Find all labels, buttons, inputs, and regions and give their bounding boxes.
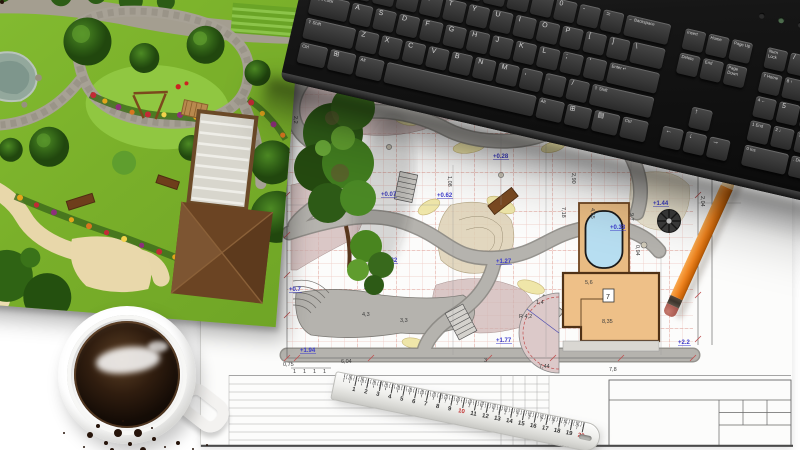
ruler-cm-tick [438, 393, 441, 403]
key-l: L [536, 46, 561, 71]
elevation-label: +1.27 [496, 259, 512, 265]
key-z: Z [355, 30, 380, 55]
key-7: 7 [483, 0, 508, 7]
key-g: G [442, 24, 467, 49]
key-del: . Del [787, 155, 800, 180]
key-e: E [395, 0, 420, 13]
keyboard: `1234567890-=← BackspaceTabQWERTYUIOP[]\… [280, 0, 800, 210]
key-: / [787, 52, 800, 77]
key-s: S [372, 8, 397, 33]
key-p: P [559, 25, 584, 50]
key-j: J [489, 35, 514, 60]
dimension-label: 3,3 [400, 318, 408, 324]
plan-house-terrace [563, 341, 659, 351]
dimension-label: 1 [303, 369, 306, 375]
key-r: R [419, 0, 444, 18]
ruler-cm-tick [462, 398, 465, 408]
key-end: End [699, 58, 724, 83]
tree-trunk [346, 226, 350, 268]
ruler-cm-tick [414, 388, 417, 398]
ruler-cm-tick [546, 415, 549, 425]
dimension-label: 8,35 [602, 319, 613, 325]
ruler-cm-tick [378, 381, 381, 391]
dimension-label: 1 [293, 369, 296, 375]
ruler-cm-tick [582, 422, 585, 432]
key-: ↑ [688, 106, 713, 131]
ruler-cm-tick [450, 396, 453, 406]
key-0-ins: 0 Ins [741, 144, 790, 175]
ruler-cm-tick [522, 410, 525, 420]
key-: ⊞ [327, 49, 357, 75]
key-: - [576, 4, 601, 29]
ruler-cm-tick [367, 379, 370, 389]
ruler-number-1: 1 [348, 386, 359, 394]
ruler-cm-tick [510, 408, 513, 418]
key-k: K [512, 40, 537, 65]
dimension-label: 1 [313, 369, 316, 375]
key-: ; [559, 51, 584, 76]
room-number-label: 7 [606, 294, 610, 301]
key-b: B [448, 51, 473, 76]
key-y: Y [465, 4, 490, 29]
ruler-cm-tick [570, 420, 573, 430]
key-8: 8 ↑ [781, 77, 800, 102]
key-: / [565, 78, 590, 103]
key-: → [706, 136, 731, 161]
key-t: T [442, 0, 467, 24]
dimension-label: 5,6 [585, 280, 593, 286]
key-backspace: ← Backspace [623, 15, 672, 46]
ruler-number-7: 7 [420, 401, 431, 409]
key-x: X [378, 35, 403, 60]
key-4: 4 ← [752, 96, 777, 121]
radius-label: R 4,2 [519, 314, 532, 320]
key-: ⊞ [563, 103, 593, 129]
key-ctrl: Ctrl [619, 116, 649, 142]
key-: ↓ [682, 131, 707, 156]
key-a: A [349, 3, 374, 28]
key-alt: Alt [535, 97, 565, 123]
key-m: M [495, 62, 520, 87]
coffee-reflection-small [148, 341, 168, 352]
ruler-number-8: 8 [432, 403, 443, 411]
dimension-label: 0,75 [283, 362, 294, 368]
key-o: O [535, 20, 560, 45]
ruler-number-4: 4 [384, 393, 395, 401]
elevation-label: +2.2 [678, 340, 691, 346]
key-0: 0 [553, 0, 578, 24]
ruler-number-16: 16 [528, 422, 539, 430]
ruler-number-3: 3 [372, 391, 383, 399]
dimension-label: 6,04 [341, 359, 352, 365]
ruler-cm-tick [498, 405, 501, 415]
ruler-cm-tick [558, 418, 561, 428]
key-7-home: 7 Home [758, 71, 783, 96]
key-i: I [512, 15, 537, 40]
key-: ← [659, 125, 684, 150]
key-home: Home [705, 33, 730, 58]
ruler-cm-tick [355, 376, 358, 386]
coffee-surface [74, 321, 180, 428]
ruler-number-13: 13 [492, 415, 503, 423]
dimension-label: 1,4 [536, 300, 544, 306]
dimension-label: 7,8 [609, 367, 617, 373]
key-page-up: Page Up [728, 39, 753, 64]
key-q: Q [348, 0, 373, 2]
ruler-cm-tick [390, 384, 393, 394]
key-u: U [489, 9, 514, 34]
key-: , [518, 67, 543, 92]
key-: ' [582, 56, 607, 81]
key-f: F [419, 19, 444, 44]
key-insert: Insert [681, 28, 706, 53]
ruler-number-2: 2 [360, 388, 371, 396]
key-1-end: 1 End [746, 120, 771, 145]
key-: ] [606, 36, 631, 61]
coffee-cup [58, 306, 196, 444]
ruler-number-15: 15 [516, 420, 527, 428]
ruler-number-11: 11 [468, 410, 479, 418]
ruler-number-14: 14 [504, 418, 515, 426]
ruler-cm-tick [426, 391, 429, 401]
key-w: W [372, 0, 397, 7]
key-h: H [466, 29, 491, 54]
ruler-number-19: 19 [563, 430, 574, 438]
key-3-pgdn: 3 PgDn [793, 131, 800, 156]
dimension-label: 4,3 [362, 312, 370, 318]
key-page-down: Page Down [723, 63, 748, 88]
dimension-label: 3 [484, 358, 487, 364]
ruler-cm-tick [474, 401, 477, 411]
ruler-number-5: 5 [396, 396, 407, 404]
ruler-cm-tick [486, 403, 489, 413]
elevation-label: +1.94 [300, 348, 316, 354]
key-: ▤ [591, 110, 621, 136]
ruler-cm-tick [402, 386, 405, 396]
key-: \ [629, 42, 666, 70]
coffee-crumbs [0, 0, 4, 4]
key-5: 5 [775, 101, 800, 126]
key-: [ [582, 31, 607, 56]
ruler-number-17: 17 [540, 425, 551, 433]
key-8: 8 [506, 0, 531, 13]
ruler-number-12: 12 [480, 413, 491, 421]
dimension-label: 1 [323, 369, 326, 375]
workspace-photo: +0.02+0.28+0.07+0.62+0.30+0.82+1.27+0.33… [0, 0, 800, 450]
key-d: D [395, 13, 420, 38]
ruler-cm-tick [534, 413, 537, 423]
key-delete: Delete [676, 52, 701, 77]
key-num-lock: Num Lock [763, 47, 788, 72]
elevation-label: +1.77 [496, 338, 512, 344]
dimension-label: 7,44 [539, 364, 550, 370]
key-n: N [472, 57, 497, 82]
key-: . [542, 73, 567, 98]
key-ctrl: Ctrl [296, 42, 328, 69]
ruler-number-18: 18 [552, 427, 563, 435]
key-alt: Alt [355, 55, 385, 81]
key-v: V [425, 46, 450, 71]
ruler-number-10: 10 [456, 408, 467, 416]
ruler-number-6: 6 [408, 398, 419, 406]
key-c: C [401, 40, 426, 65]
key-2: 2 ↓ [770, 125, 795, 150]
ruler-number-9: 9 [444, 405, 455, 413]
key-9: 9 [529, 0, 554, 18]
key-: = [600, 9, 625, 34]
